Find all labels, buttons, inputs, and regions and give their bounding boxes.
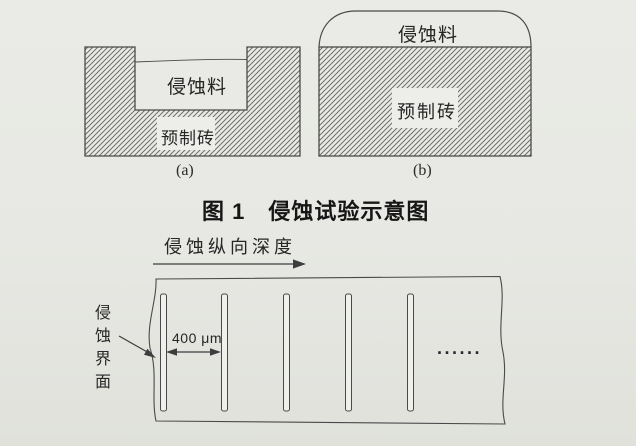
erosion-interface-label: 侵蚀界面 [92, 304, 108, 396]
diagram-b-erosion-label: 侵蚀料 [398, 20, 458, 47]
diagram-a-brick-label: 预制砖 [161, 124, 215, 149]
slot-5 [408, 294, 414, 411]
depth-arrow-head [293, 259, 306, 268]
spacing-arrow-head-left [166, 348, 177, 356]
spacing-arrow-head-right [210, 348, 221, 356]
diagram-b-brick-label: 预制砖 [397, 98, 457, 124]
slot-1 [161, 294, 167, 411]
figure1-caption: 图 1 侵蚀试验示意图 [202, 194, 429, 226]
diagram-a-caption: (a) [176, 162, 194, 180]
slot-2 [222, 294, 228, 411]
interface-pointer-line [119, 336, 149, 353]
scanned-paper-figure: 侵蚀料 预制砖 (a) 侵蚀料 预制砖 (b) 图 1 侵蚀试验示意图 侵蚀纵向… [0, 0, 636, 446]
slot-4 [346, 294, 352, 411]
slot-3 [284, 294, 290, 411]
diagram-b-caption: (b) [413, 162, 432, 180]
continuation-dots: ······ [437, 343, 482, 364]
diagram-a-melt-level-line [135, 59, 247, 62]
interface-pointer-head [144, 349, 156, 358]
erosion-depth-label: 侵蚀纵向深度 [164, 233, 296, 259]
slot-spacing-label: 400 μm [172, 330, 222, 346]
diagram-a-erosion-label: 侵蚀料 [167, 72, 227, 99]
